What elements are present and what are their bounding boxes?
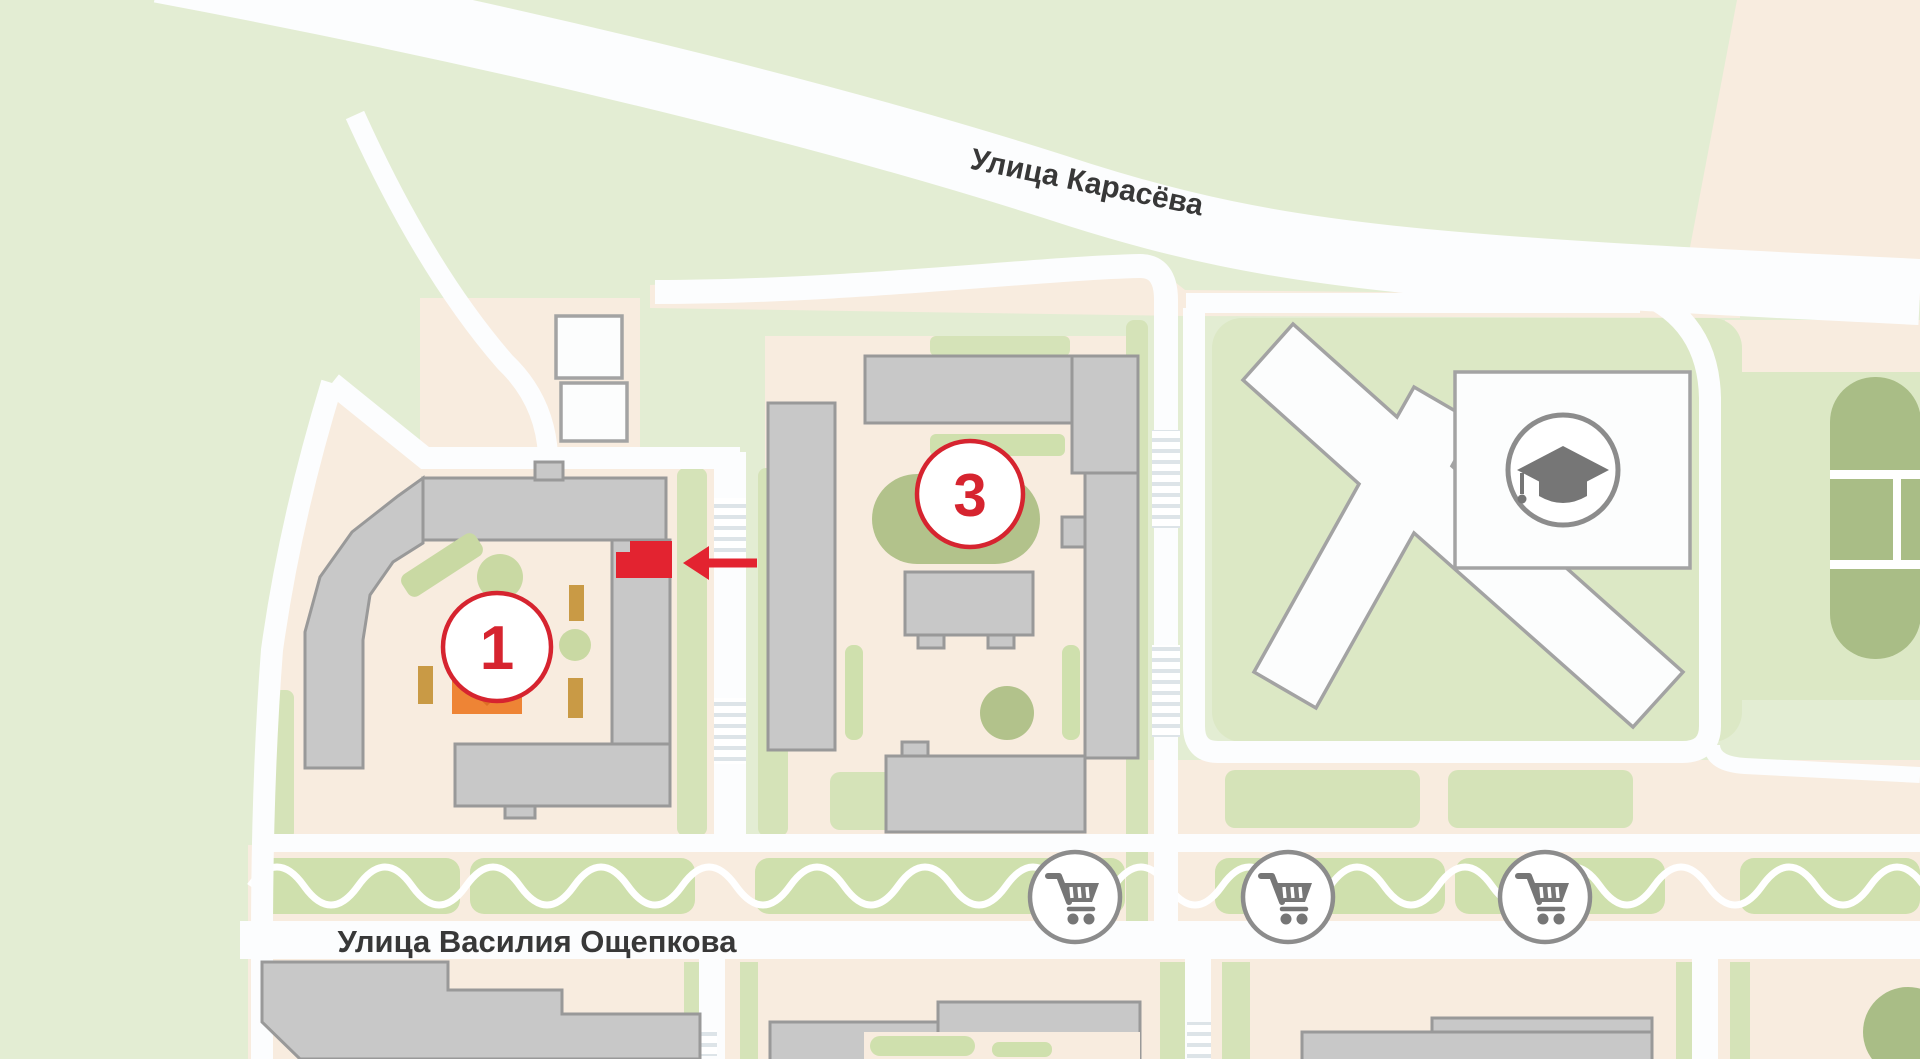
building-3-north-wing [865, 356, 1072, 423]
marker-building-3-label: 3 [953, 462, 986, 529]
bench-area [569, 585, 584, 621]
building-1-notch [505, 806, 535, 818]
bench-area [568, 678, 583, 718]
shopping-cart-icon[interactable] [1243, 852, 1333, 942]
building-1-north-wing [423, 478, 666, 540]
marker-building-1[interactable]: 1 [443, 593, 551, 701]
site-map: 1 3 Улица Карасёва Улица Василия Ощепков… [0, 0, 1920, 1059]
courtyard-lawn [992, 1042, 1052, 1057]
future-building [1432, 1018, 1652, 1032]
building-3-notch [918, 635, 944, 648]
courtyard-lawn [870, 1036, 975, 1056]
building-3-northeast-corner [1072, 356, 1138, 473]
crosswalk [714, 498, 746, 558]
marker-building-1-label: 1 [480, 614, 514, 683]
building-3-middle-wing [905, 572, 1033, 635]
crosswalk [1187, 1022, 1211, 1058]
courtyard-lawn [980, 686, 1034, 740]
crosswalk [1152, 430, 1180, 528]
shopping-cart-icon[interactable] [1500, 852, 1590, 942]
building-3-notch [902, 742, 928, 756]
courtyard-lawn [1062, 645, 1080, 740]
shopping-cart-icon[interactable] [1030, 852, 1120, 942]
building-3-step [1062, 517, 1085, 547]
graduation-cap-icon[interactable] [1508, 415, 1618, 525]
street-label-oshchepkova: Улица Василия Ощепкова [338, 924, 738, 959]
crosswalk [714, 698, 746, 764]
crosswalk [1152, 645, 1180, 737]
marker-building-3[interactable]: 3 [917, 441, 1023, 547]
building-3-south-wing [886, 756, 1085, 832]
building-3-west-wing [768, 403, 835, 750]
building-3-east-wing [1085, 473, 1138, 758]
building-3-notch [988, 635, 1014, 648]
bench-area [418, 666, 433, 704]
courtyard-lawn [559, 629, 591, 661]
utility-buildings [556, 316, 627, 441]
building-1-notch [535, 462, 563, 480]
building-1-south-wing [455, 744, 670, 806]
courtyard-lawn [845, 645, 863, 740]
crosswalk [699, 1030, 717, 1056]
future-building [1302, 1032, 1652, 1059]
